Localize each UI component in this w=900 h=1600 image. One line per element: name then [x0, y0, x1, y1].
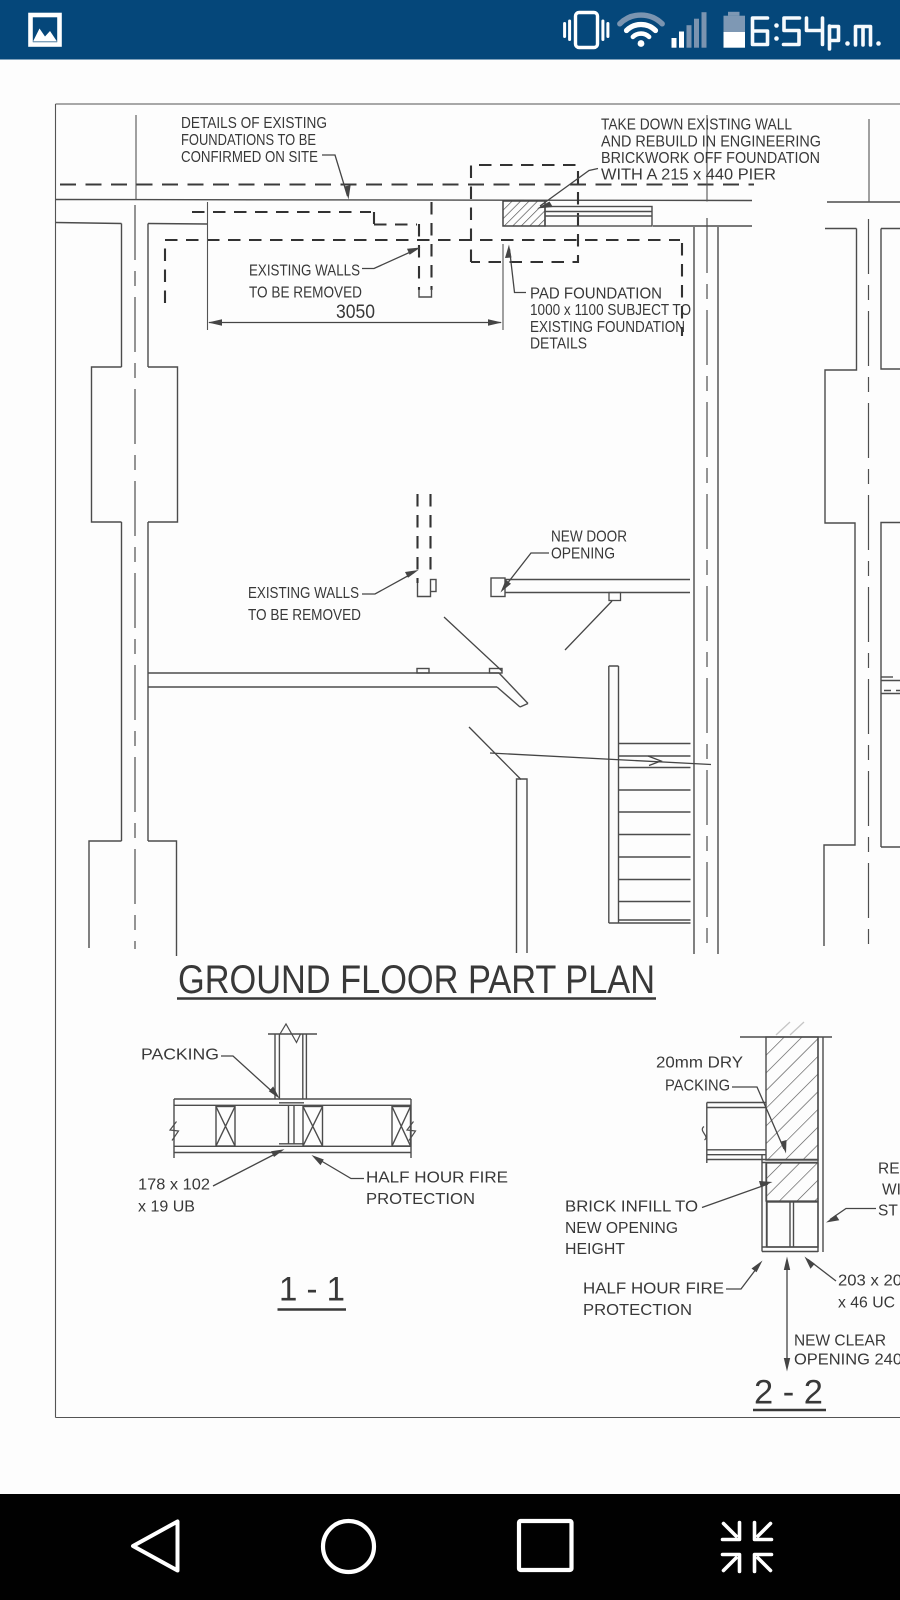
svg-text:OPENING: OPENING	[551, 545, 615, 562]
svg-text:ST: ST	[878, 1202, 898, 1219]
svg-text:PACKING: PACKING	[665, 1077, 730, 1094]
svg-text:BRICK INFILL TO: BRICK INFILL TO	[565, 1198, 698, 1215]
svg-text:1000 x 1100 SUBJECT TO: 1000 x 1100 SUBJECT TO	[530, 302, 691, 319]
svg-text:1 - 1: 1 - 1	[279, 1271, 345, 1309]
svg-text:BRICKWORK OFF FOUNDATION: BRICKWORK OFF FOUNDATION	[601, 150, 820, 167]
svg-text:TO BE REMOVED: TO BE REMOVED	[249, 284, 362, 301]
svg-text:OPENING 240: OPENING 240	[794, 1351, 900, 1368]
svg-text:EXISTING WALLS: EXISTING WALLS	[249, 262, 360, 279]
svg-text:WITH A 215 x 440 PIER: WITH A 215 x 440 PIER	[601, 166, 776, 183]
svg-text:HALF HOUR FIRE: HALF HOUR FIRE	[366, 1169, 508, 1186]
svg-text:DETAILS: DETAILS	[530, 335, 587, 352]
svg-text:GROUND FLOOR PART PLAN: GROUND FLOOR PART PLAN	[178, 958, 655, 1002]
svg-text:TO BE REMOVED: TO BE REMOVED	[248, 607, 361, 624]
svg-text:x 19 UB: x 19 UB	[138, 1198, 195, 1215]
svg-text:20mm DRY: 20mm DRY	[656, 1054, 743, 1071]
svg-text:EXISTING FOUNDATION: EXISTING FOUNDATION	[530, 319, 685, 336]
svg-text:AND REBUILD IN ENGINEERING: AND REBUILD IN ENGINEERING	[601, 133, 821, 150]
svg-text:NEW OPENING: NEW OPENING	[565, 1220, 678, 1237]
svg-text:TAKE DOWN EXISTING WALL: TAKE DOWN EXISTING WALL	[601, 116, 792, 133]
svg-text:PAD FOUNDATION: PAD FOUNDATION	[530, 285, 662, 302]
svg-text:NEW CLEAR: NEW CLEAR	[794, 1332, 886, 1349]
svg-text:NEW DOOR: NEW DOOR	[551, 528, 627, 545]
svg-text:RE: RE	[878, 1160, 900, 1177]
svg-text:178 x 102: 178 x 102	[138, 1176, 210, 1193]
svg-text:EXISTING WALLS: EXISTING WALLS	[248, 585, 359, 602]
svg-text:PROTECTION: PROTECTION	[366, 1191, 475, 1208]
svg-text:WIT: WIT	[882, 1181, 900, 1198]
svg-text:203 x 20: 203 x 20	[838, 1272, 900, 1289]
svg-text:DETAILS OF EXISTING: DETAILS OF EXISTING	[181, 115, 327, 132]
svg-text:2 - 2: 2 - 2	[754, 1374, 823, 1412]
svg-text:x 46 UC: x 46 UC	[838, 1294, 895, 1311]
svg-text:FOUNDATIONS TO BE: FOUNDATIONS TO BE	[181, 132, 316, 149]
svg-text:HALF HOUR FIRE: HALF HOUR FIRE	[583, 1280, 724, 1297]
svg-text:HEIGHT: HEIGHT	[565, 1241, 626, 1258]
svg-text:PACKING: PACKING	[141, 1046, 219, 1063]
svg-text:PROTECTION: PROTECTION	[583, 1302, 692, 1319]
svg-text:CONFIRMED ON SITE: CONFIRMED ON SITE	[181, 149, 318, 166]
svg-text:3050: 3050	[336, 302, 375, 323]
